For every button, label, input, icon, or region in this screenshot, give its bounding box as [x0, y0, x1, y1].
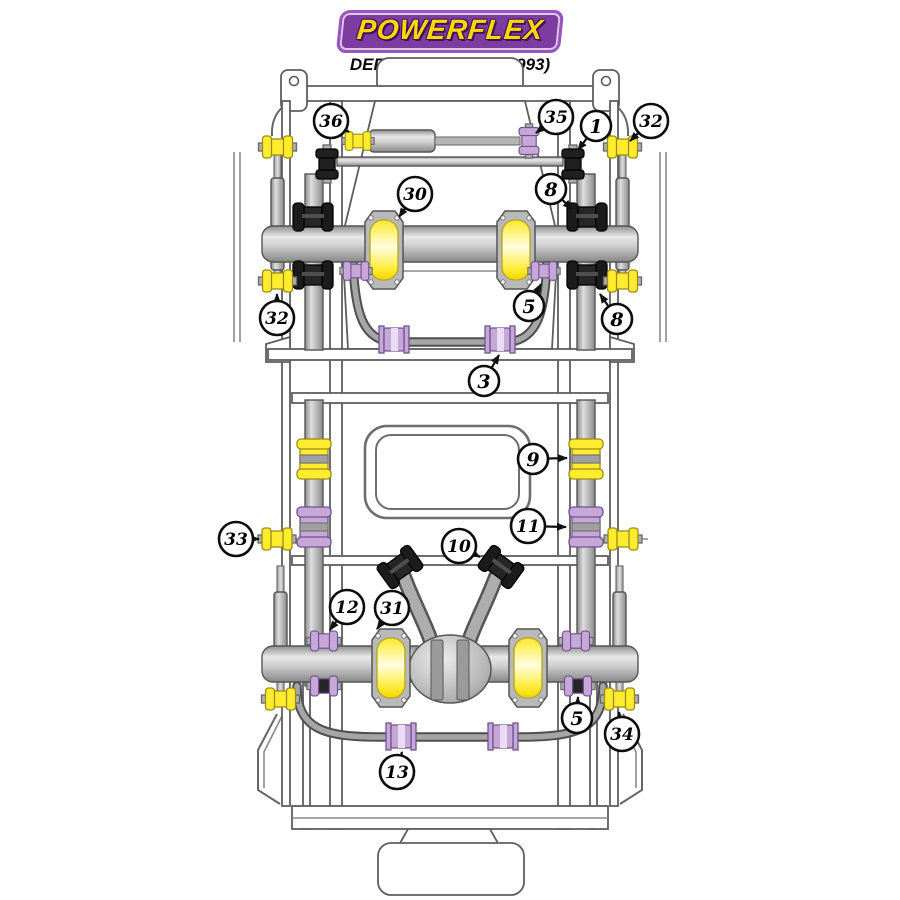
- steering-damper-body: [369, 130, 435, 152]
- svg-text:30: 30: [403, 185, 427, 205]
- svg-text:35: 35: [544, 108, 568, 128]
- rear-axle-spool-bush-right: [559, 631, 593, 651]
- callout-35: 35: [536, 100, 573, 134]
- rear-shock-lower-bush-left: [262, 688, 300, 710]
- bolt-hole-left: [290, 77, 299, 86]
- steering-damper-yellow-bush: [342, 132, 374, 151]
- rear-axle-spool-bush-left: [307, 631, 341, 651]
- steering-damper-shaft: [435, 137, 520, 145]
- svg-text:11: 11: [516, 517, 540, 537]
- panhard-rod-bush-left: [340, 262, 372, 281]
- svg-text:8: 8: [609, 309, 623, 331]
- svg-text:3: 3: [477, 371, 490, 393]
- svg-text:13: 13: [385, 763, 409, 783]
- trailing-arm-purple-bush-left: [297, 507, 331, 547]
- bolt-hole-right: [602, 77, 611, 86]
- svg-text:31: 31: [380, 599, 404, 619]
- radius-arm-bush-front-left-upper: [293, 203, 333, 231]
- front-anti-roll-bar-bush-left: [379, 326, 409, 353]
- svg-text:9: 9: [526, 449, 539, 471]
- rear-anti-roll-bar-bush-left: [386, 723, 416, 750]
- rear-spring-seat-left: [372, 629, 410, 707]
- chassis-side-bush-left: [258, 528, 296, 550]
- panhard-rod-bush-right: [528, 262, 560, 281]
- svg-text:10: 10: [447, 537, 471, 557]
- track-rod-end-bush-right: [562, 145, 584, 183]
- chassis-side-bush-right: [604, 528, 642, 550]
- svg-text:33: 33: [224, 530, 248, 550]
- steering-damper-purple-bush: [519, 124, 539, 158]
- chassis-opening: [365, 426, 530, 518]
- tow-plate: [378, 843, 524, 895]
- rear-axle-lower-bush-left: [307, 676, 341, 696]
- svg-text:5: 5: [522, 296, 535, 318]
- rear-differential: [409, 635, 491, 703]
- svg-text:5: 5: [570, 708, 583, 730]
- front-spring-seat-left: [365, 211, 403, 289]
- trailing-arm-yellow-bush-left: [297, 439, 331, 479]
- suspension-diagram: 3635132308325839113310123153413: [0, 0, 900, 900]
- callout-31: 31: [375, 591, 409, 629]
- svg-text:32: 32: [265, 309, 289, 329]
- radius-arm-bush-front-left-lower: [293, 261, 333, 289]
- svg-text:34: 34: [610, 725, 634, 745]
- svg-text:12: 12: [335, 598, 359, 618]
- trailing-arm-yellow-bush-right: [569, 439, 603, 479]
- track-rod-end-bush-left: [316, 145, 338, 183]
- bumper-bar: [290, 86, 610, 101]
- rear-anti-roll-bar-bush-right: [488, 723, 518, 750]
- svg-text:1: 1: [589, 116, 602, 138]
- svg-text:8: 8: [543, 179, 557, 201]
- radius-arm-bush-front-right-lower: [567, 261, 607, 289]
- front-shock-lower-bush-left: [259, 270, 297, 292]
- svg-text:32: 32: [639, 112, 663, 132]
- rear-axle-lower-bush-right: [561, 676, 595, 696]
- callout-3: 3: [469, 355, 499, 396]
- rear-tow-area: [378, 829, 524, 895]
- callout-32-top: 32: [630, 104, 668, 141]
- radius-arm-bush-front-right-upper: [567, 203, 607, 231]
- front-spring-seat-right: [497, 211, 535, 289]
- callout-33: 33: [219, 522, 259, 556]
- powerflex-diagram-page: POWERFLEX DEFENDER (1984 - 1993): [0, 0, 900, 900]
- callout-36: 36: [314, 104, 349, 138]
- front-shock-upper-bush-right: [604, 136, 642, 158]
- front-shock-upper-bush-left: [259, 136, 297, 158]
- callout-13: 13: [380, 752, 414, 789]
- callout-12: 12: [330, 590, 364, 630]
- front-axle: [262, 226, 638, 262]
- front-anti-roll-bar-bush-right: [485, 326, 515, 353]
- rear-spring-seat-right: [509, 629, 547, 707]
- front-shock-lower-bush-right: [604, 270, 642, 292]
- trailing-arm-purple-bush-right: [569, 507, 603, 547]
- rear-shock-lower-bush-right: [601, 688, 639, 710]
- svg-text:36: 36: [319, 112, 343, 132]
